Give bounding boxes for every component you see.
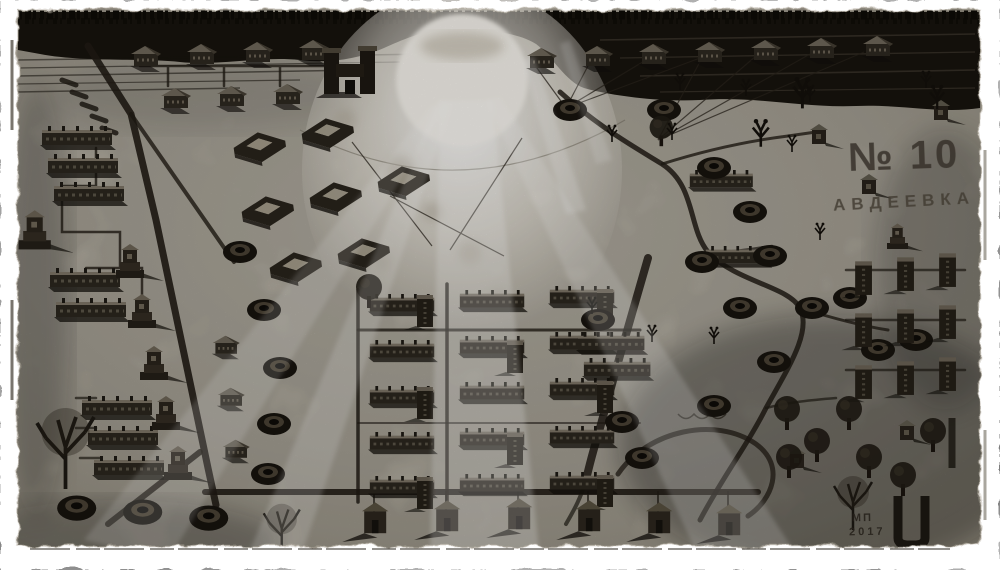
artist-signature: МП 2017	[852, 511, 886, 540]
signature-initials: МП	[852, 512, 873, 524]
etching-scene	[0, 0, 1000, 570]
etching-print: № 10 АВДЕЕВКА МП 2017	[0, 0, 1000, 570]
signature-year: 2017	[849, 525, 886, 540]
grain-texture	[14, 6, 986, 550]
district-number-label: № 10	[847, 132, 961, 181]
